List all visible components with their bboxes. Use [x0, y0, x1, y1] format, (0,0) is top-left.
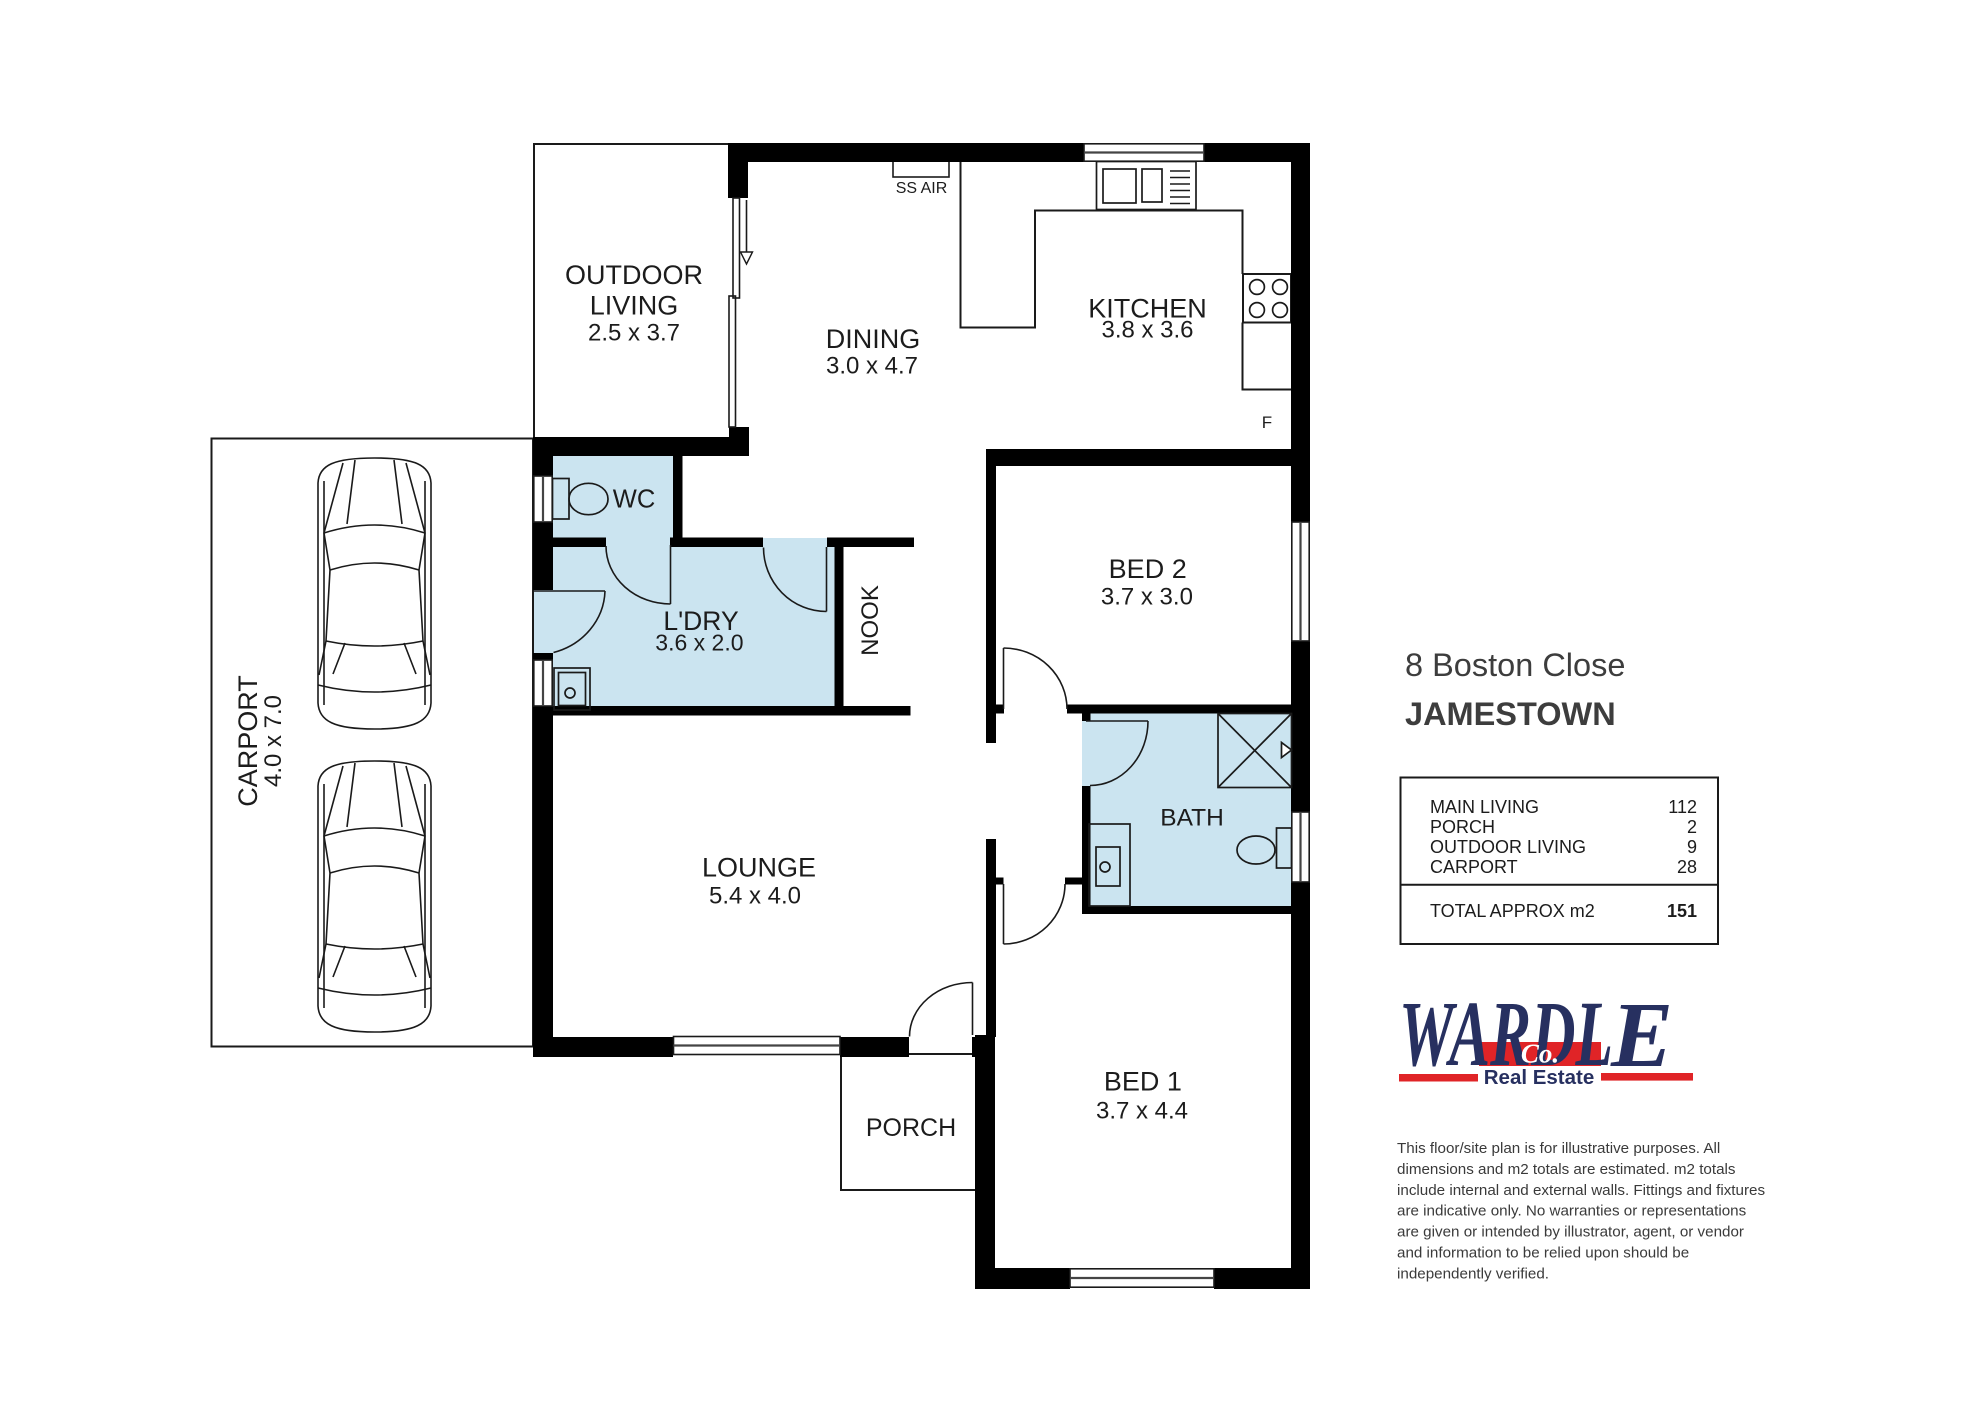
svg-text:3.8 x 3.6: 3.8 x 3.6	[1101, 317, 1193, 344]
svg-text:E: E	[1610, 984, 1673, 1087]
svg-text:dimensions and m2 totals are e: dimensions and m2 totals are estimated. …	[1397, 1161, 1736, 1178]
svg-text:SS AIR: SS AIR	[896, 180, 948, 197]
svg-text:PORCH: PORCH	[1430, 817, 1495, 837]
svg-text:8 Boston Close: 8 Boston Close	[1405, 647, 1625, 683]
svg-text:CARPORT: CARPORT	[1430, 857, 1518, 877]
svg-text:Co.: Co.	[1521, 1039, 1559, 1069]
svg-text:DINING: DINING	[826, 324, 921, 354]
svg-text:2: 2	[1687, 817, 1697, 837]
svg-text:OUTDOOR: OUTDOOR	[565, 260, 703, 290]
svg-text:BATH: BATH	[1160, 805, 1224, 832]
svg-text:Real Estate: Real Estate	[1484, 1066, 1595, 1089]
svg-text:MAIN LIVING: MAIN LIVING	[1430, 797, 1539, 817]
svg-text:2.5 x 3.7: 2.5 x 3.7	[588, 320, 680, 347]
svg-text:TOTAL APPROX m2: TOTAL APPROX m2	[1430, 901, 1595, 921]
svg-text:LIVING: LIVING	[590, 291, 679, 321]
svg-text:3.0 x 4.7: 3.0 x 4.7	[826, 353, 918, 380]
svg-text:are given or intended by illus: are given or intended by illustrator, ag…	[1397, 1224, 1744, 1241]
svg-text:This floor/site plan is for il: This floor/site plan is for illustrative…	[1397, 1140, 1720, 1157]
svg-text:PORCH: PORCH	[866, 1114, 956, 1142]
svg-text:BED 2: BED 2	[1109, 554, 1187, 584]
svg-text:LOUNGE: LOUNGE	[702, 853, 816, 883]
svg-text:5.4 x 4.0: 5.4 x 4.0	[709, 883, 801, 910]
svg-text:4.0 x 7.0: 4.0 x 7.0	[260, 695, 287, 787]
svg-text:NOOK: NOOK	[857, 585, 884, 656]
svg-text:F: F	[1262, 413, 1272, 432]
svg-text:include internal and external: include internal and external walls. Fit…	[1397, 1182, 1765, 1199]
svg-text:3.7 x 3.0: 3.7 x 3.0	[1101, 583, 1193, 610]
svg-text:3.7 x 4.4: 3.7 x 4.4	[1096, 1098, 1188, 1125]
svg-text:BED 1: BED 1	[1104, 1067, 1182, 1097]
svg-text:CARPORT: CARPORT	[233, 675, 263, 807]
svg-text:JAMESTOWN: JAMESTOWN	[1405, 696, 1616, 732]
svg-text:OUTDOOR LIVING: OUTDOOR LIVING	[1430, 837, 1586, 857]
svg-text:3.6 x 2.0: 3.6 x 2.0	[655, 630, 743, 656]
svg-text:WC: WC	[613, 486, 655, 514]
svg-text:9: 9	[1687, 837, 1697, 857]
svg-text:are indicative only. No warran: are indicative only. No warranties or re…	[1397, 1203, 1747, 1220]
svg-text:independently verified.: independently verified.	[1397, 1265, 1549, 1282]
svg-text:112: 112	[1668, 797, 1697, 817]
svg-text:28: 28	[1677, 857, 1697, 877]
svg-text:151: 151	[1667, 901, 1697, 921]
svg-text:and information to be relied u: and information to be relied upon should…	[1397, 1245, 1689, 1262]
